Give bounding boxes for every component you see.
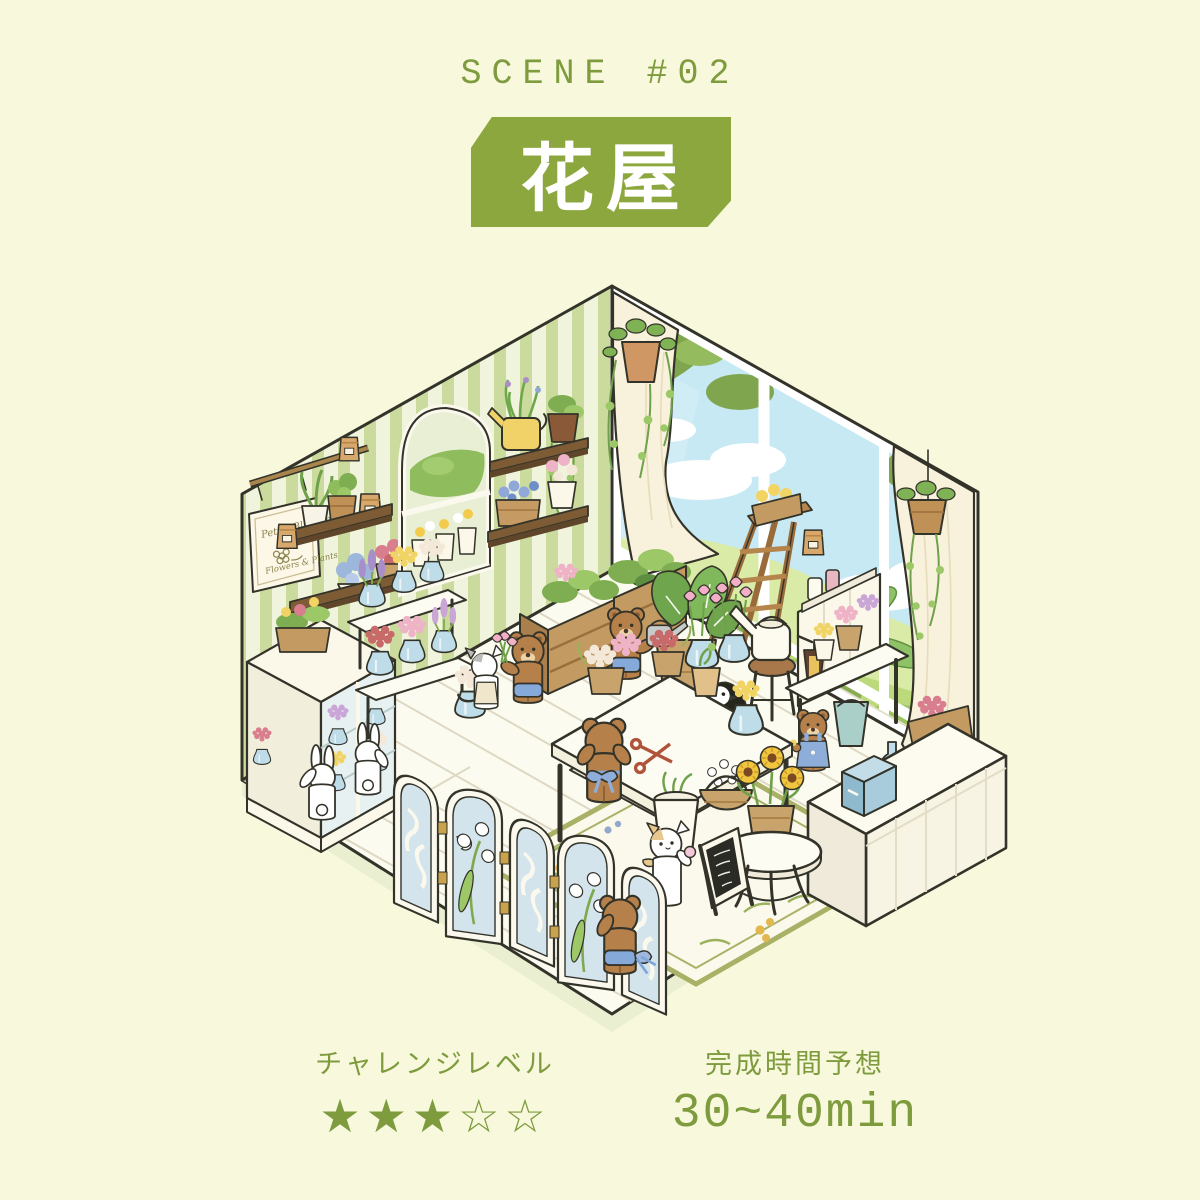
blue-flower-box xyxy=(496,481,540,527)
teal-bucket xyxy=(834,700,868,746)
challenge-label: チャレンジレベル xyxy=(265,1042,605,1081)
flower-shop-illustration: Petite Blossoms Flowers & Plants xyxy=(0,0,1200,1200)
time-value: 30~40min xyxy=(625,1087,965,1141)
challenge-stars: ★★★☆☆ xyxy=(265,1089,605,1143)
poster: { "header": { "scene_label": "SCENE #02"… xyxy=(0,0,1200,1200)
kraft-bag xyxy=(339,437,359,460)
challenge-block: チャレンジレベル ★★★☆☆ xyxy=(265,1042,605,1143)
kraft-bag xyxy=(277,524,297,548)
arched-mirror xyxy=(402,408,490,592)
time-block: 完成時間予想 30~40min xyxy=(625,1042,965,1141)
time-label: 完成時間予想 xyxy=(625,1042,965,1081)
